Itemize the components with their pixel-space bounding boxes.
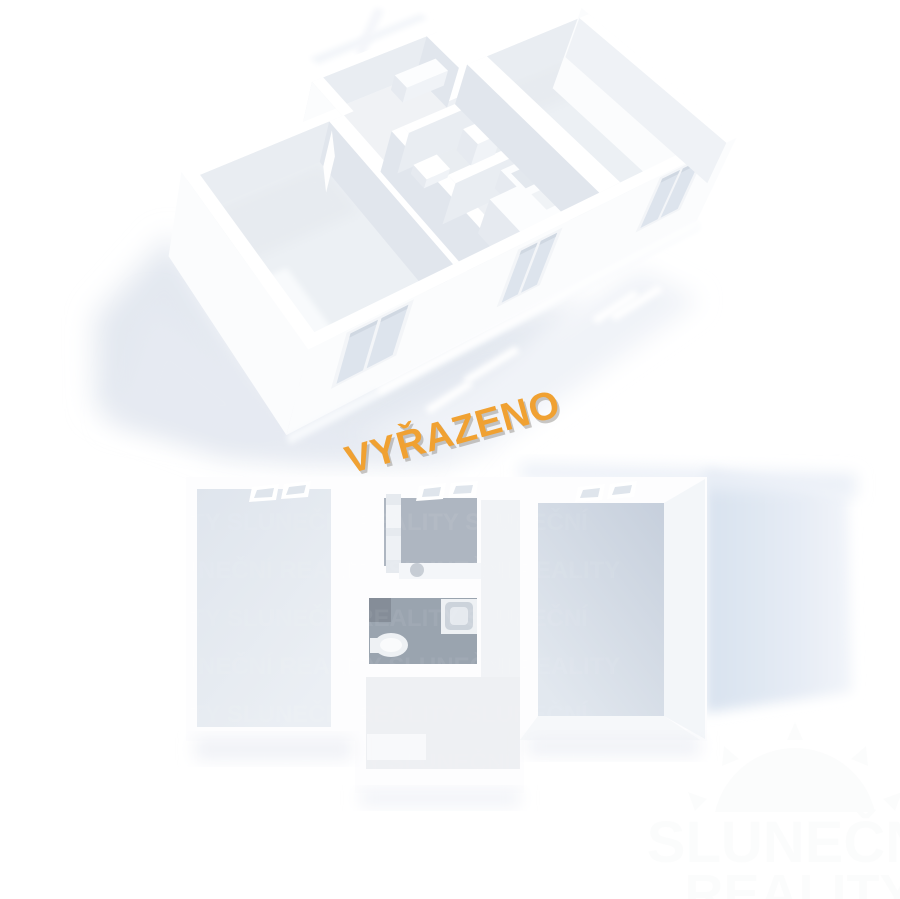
svg-text:SLUNEČNÍ REALITY SLUNEČNÍ REAL: SLUNEČNÍ REALITY SLUNEČNÍ REALITY	[150, 556, 620, 584]
svg-text:SLUNEČNÍ REALITY SLUNEČNÍ REAL: SLUNEČNÍ REALITY SLUNEČNÍ REALITY	[150, 748, 620, 776]
svg-text:SLUNEČNÍ REALITY SLUNEČNÍ REAL: SLUNEČNÍ REALITY SLUNEČNÍ REALITY	[150, 652, 620, 680]
svg-text:REALITY: REALITY	[684, 864, 900, 899]
svg-text:REALITY SLUNEČNÍ REALITY SLUNE: REALITY SLUNEČNÍ REALITY SLUNEČNÍ	[118, 604, 589, 632]
svg-text:REALITY SLUNEČNÍ REALITY SLUNE: REALITY SLUNEČNÍ REALITY SLUNEČNÍ	[118, 700, 589, 728]
svg-text:REALITY SLUNEČNÍ REALITY SLUNE: REALITY SLUNEČNÍ REALITY SLUNEČNÍ	[118, 508, 589, 536]
